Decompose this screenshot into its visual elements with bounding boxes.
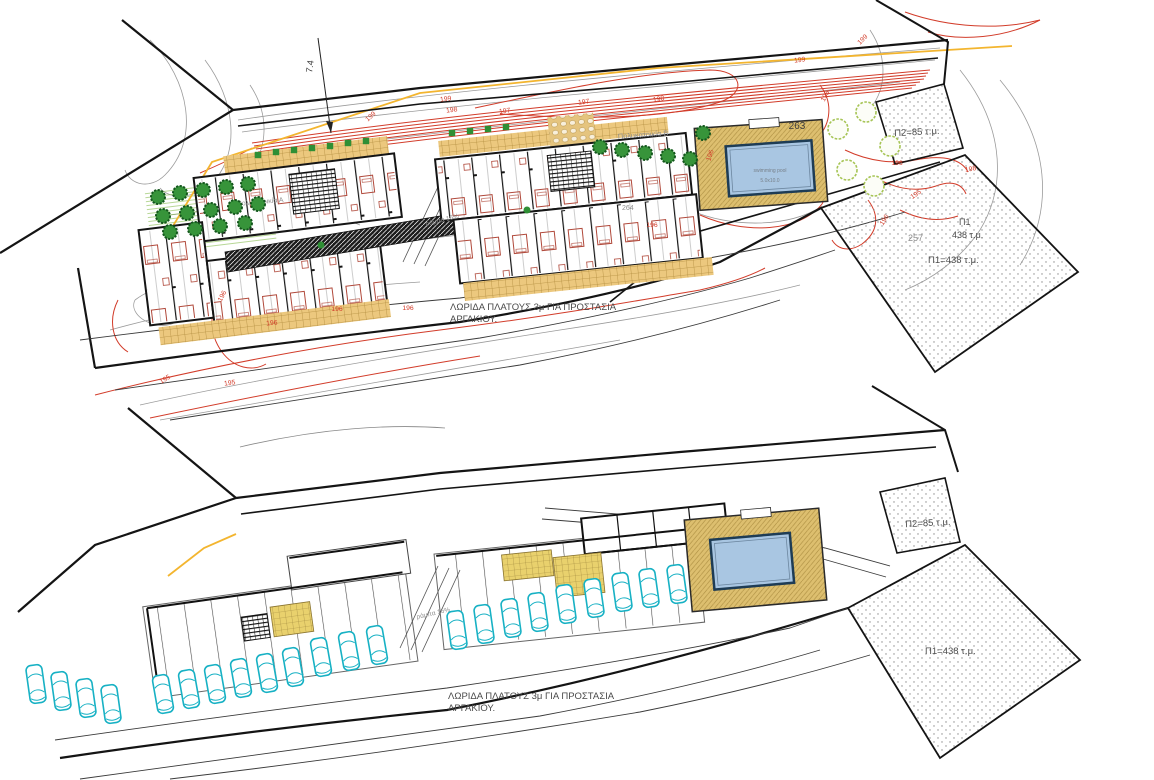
- area-p1-eq-label: Π1=438 τ.μ.: [925, 646, 976, 657]
- p1-spot-label: 257: [908, 233, 923, 243]
- dimension-7-4: 7.4: [304, 38, 333, 133]
- deck-spot-label: 263: [789, 121, 806, 132]
- car-icon: [100, 684, 121, 724]
- strip-note-line1: ΛΩΡΙΔΑ ΠΛΑΤΟΥΣ 3μ ΓΙΑ ΠΡΟΣΤΑΣΙΑ: [450, 302, 617, 313]
- contour-label: 195: [159, 374, 173, 386]
- contour-label: 196: [646, 222, 658, 229]
- stair-core: [241, 614, 270, 641]
- building-b-spot-label: 264: [622, 205, 634, 212]
- stair-core-yellow: [501, 550, 553, 581]
- swimming-pool: [710, 533, 794, 590]
- stair-core-yellow: [270, 602, 314, 637]
- contour-label: 195: [224, 379, 236, 388]
- car-icon: [50, 671, 71, 711]
- site-plan-drawing: Πολυκατοικία Α Πολυκατοικία Β 7.4: [0, 0, 1154, 780]
- dimension-label: 7.4: [304, 59, 316, 73]
- site-plan-sheet: Πολυκατοικία Α Πολυκατοικία Β 7.4: [0, 0, 1154, 780]
- pool-label-line1: swimming pool: [753, 168, 786, 174]
- area-p1-label-line1: Π1: [959, 217, 971, 227]
- contour-label: 196: [891, 160, 903, 167]
- bottom-plan: ράμπα 16% Π2=85 τ.μ. Π1=438 τ.μ. ΛΩΡΙΔΑ …: [18, 386, 1080, 779]
- strip-note-line2: ΑΡΓΑΚΙΟΥ.: [450, 314, 497, 325]
- contour-label: 196: [266, 320, 278, 328]
- contour-label: 199: [794, 56, 806, 65]
- contour-label: 198: [653, 95, 666, 104]
- area-p1-label-line2: 438 τ.μ.: [952, 230, 983, 240]
- top-plan: Πολυκατοικία Α Πολυκατοικία Β 7.4: [0, 0, 1078, 420]
- deck-step: [749, 118, 780, 129]
- car-icon: [25, 664, 46, 704]
- strip-note-line2: ΑΡΓΑΚΙΟΥ.: [448, 703, 495, 714]
- contour-label: 196: [402, 305, 414, 312]
- contour-label: 196: [331, 306, 343, 313]
- stair-core: [547, 151, 595, 191]
- road-edge-line: [168, 534, 236, 576]
- contour-label: 199: [364, 110, 377, 123]
- contour-label: 199: [440, 95, 452, 104]
- pool-label-line2: 5.0x10.0: [760, 178, 779, 184]
- area-p1-eq-label: Π1=438 τ.μ.: [928, 255, 979, 266]
- contour-label: 199: [856, 33, 869, 46]
- stipple-area-p2: [880, 478, 960, 553]
- building-b: [432, 102, 714, 303]
- stair-core: [289, 169, 340, 214]
- strip-note-line1: ΛΩΡΙΔΑ ΠΛΑΤΟΥΣ 3μ ΓΙΑ ΠΡΟΣΤΑΣΙΑ: [448, 691, 615, 702]
- car-icon: [75, 678, 96, 718]
- contour-label: 198: [446, 106, 458, 115]
